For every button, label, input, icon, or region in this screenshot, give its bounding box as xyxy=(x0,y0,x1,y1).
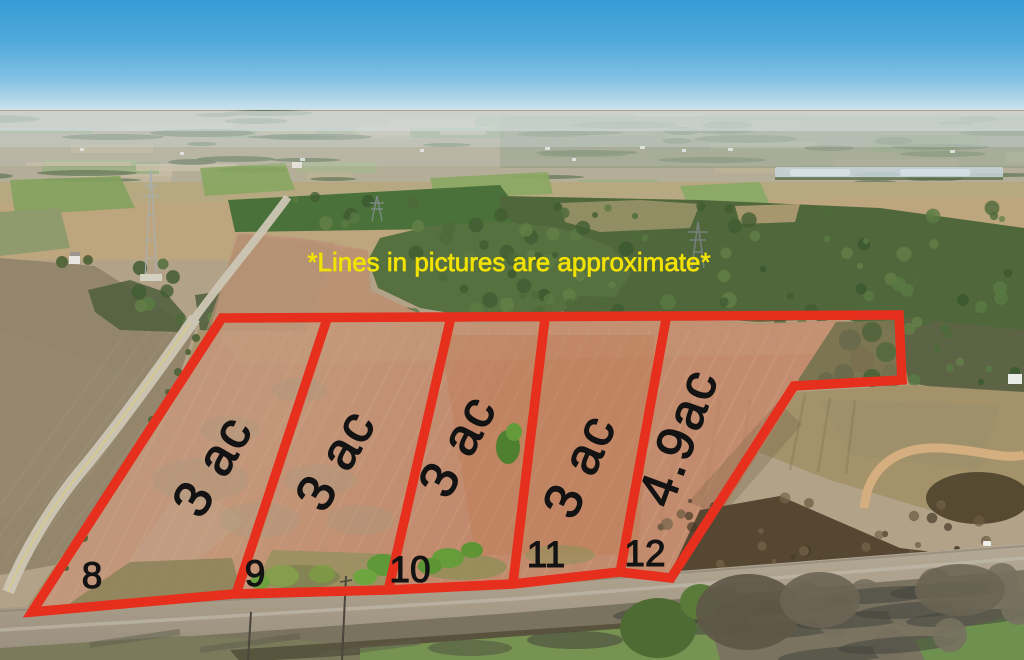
svg-text:11: 11 xyxy=(527,534,565,575)
svg-text:9: 9 xyxy=(245,553,266,594)
svg-text:12: 12 xyxy=(624,533,665,574)
svg-text:*Lines in pictures are approxi: *Lines in pictures are approximate* xyxy=(307,247,710,277)
svg-text:10: 10 xyxy=(389,549,430,590)
svg-text:8: 8 xyxy=(82,555,103,596)
